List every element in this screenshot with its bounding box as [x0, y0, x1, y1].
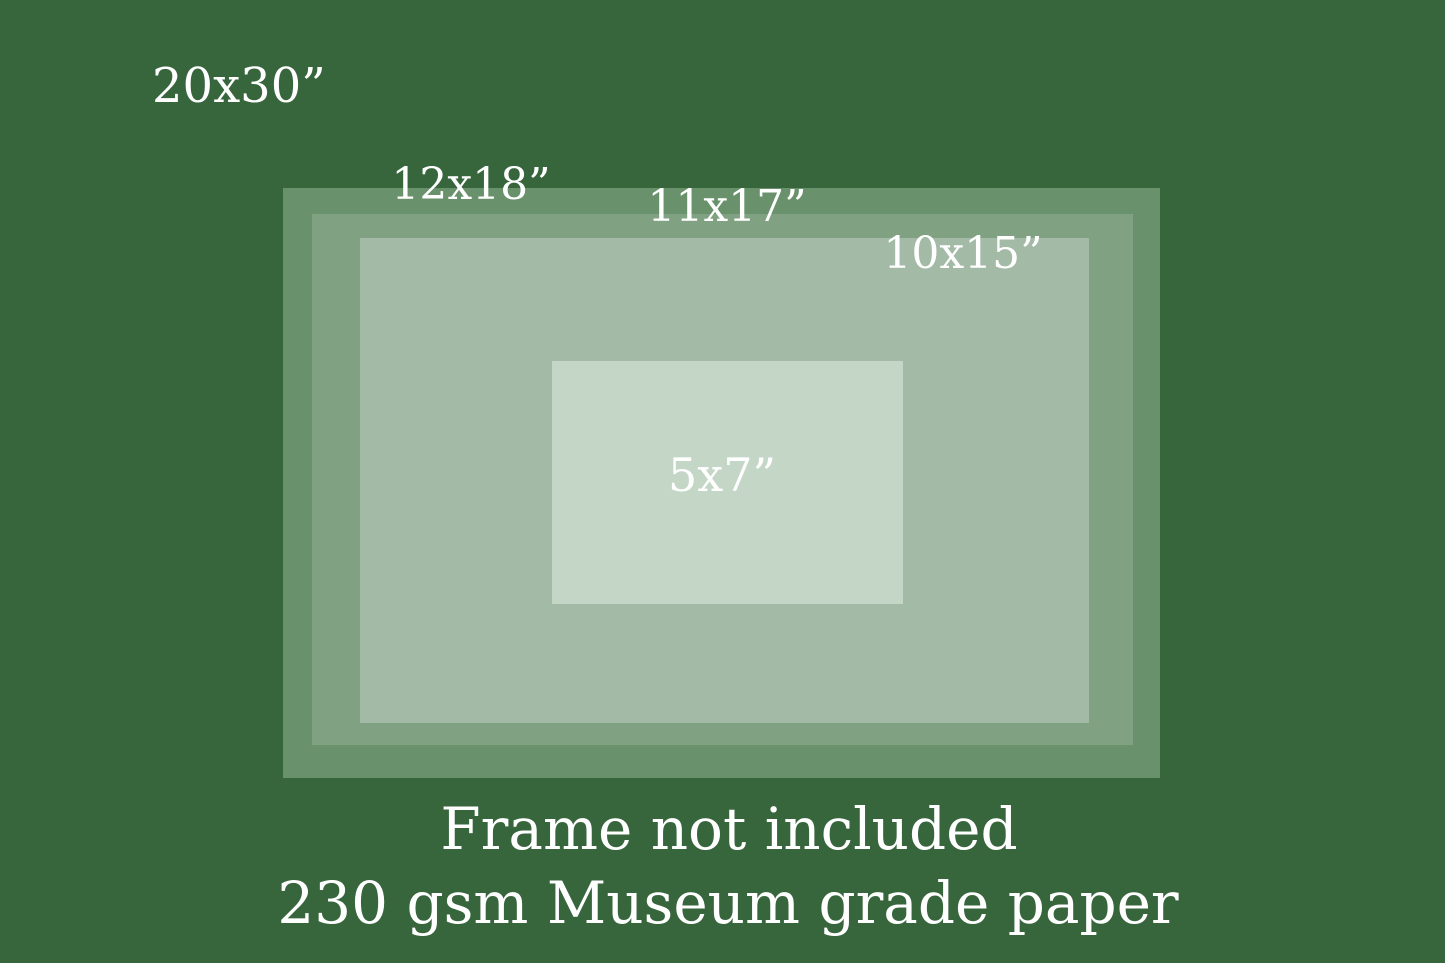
print-size-comparison-diagram: 20x30” 12x18” 11x17” 10x15” 5x7” Frame n…: [0, 0, 1445, 963]
size-label-20x30: 20x30”: [152, 62, 326, 110]
size-label-5x7: 5x7”: [668, 452, 776, 498]
size-label-10x15: 10x15”: [883, 232, 1042, 276]
footer-frame-note: Frame not included: [440, 800, 1017, 858]
size-label-12x18: 12x18”: [391, 163, 550, 207]
size-label-11x17: 11x17”: [647, 185, 806, 229]
footer-paper-note: 230 gsm Museum grade paper: [277, 874, 1178, 932]
